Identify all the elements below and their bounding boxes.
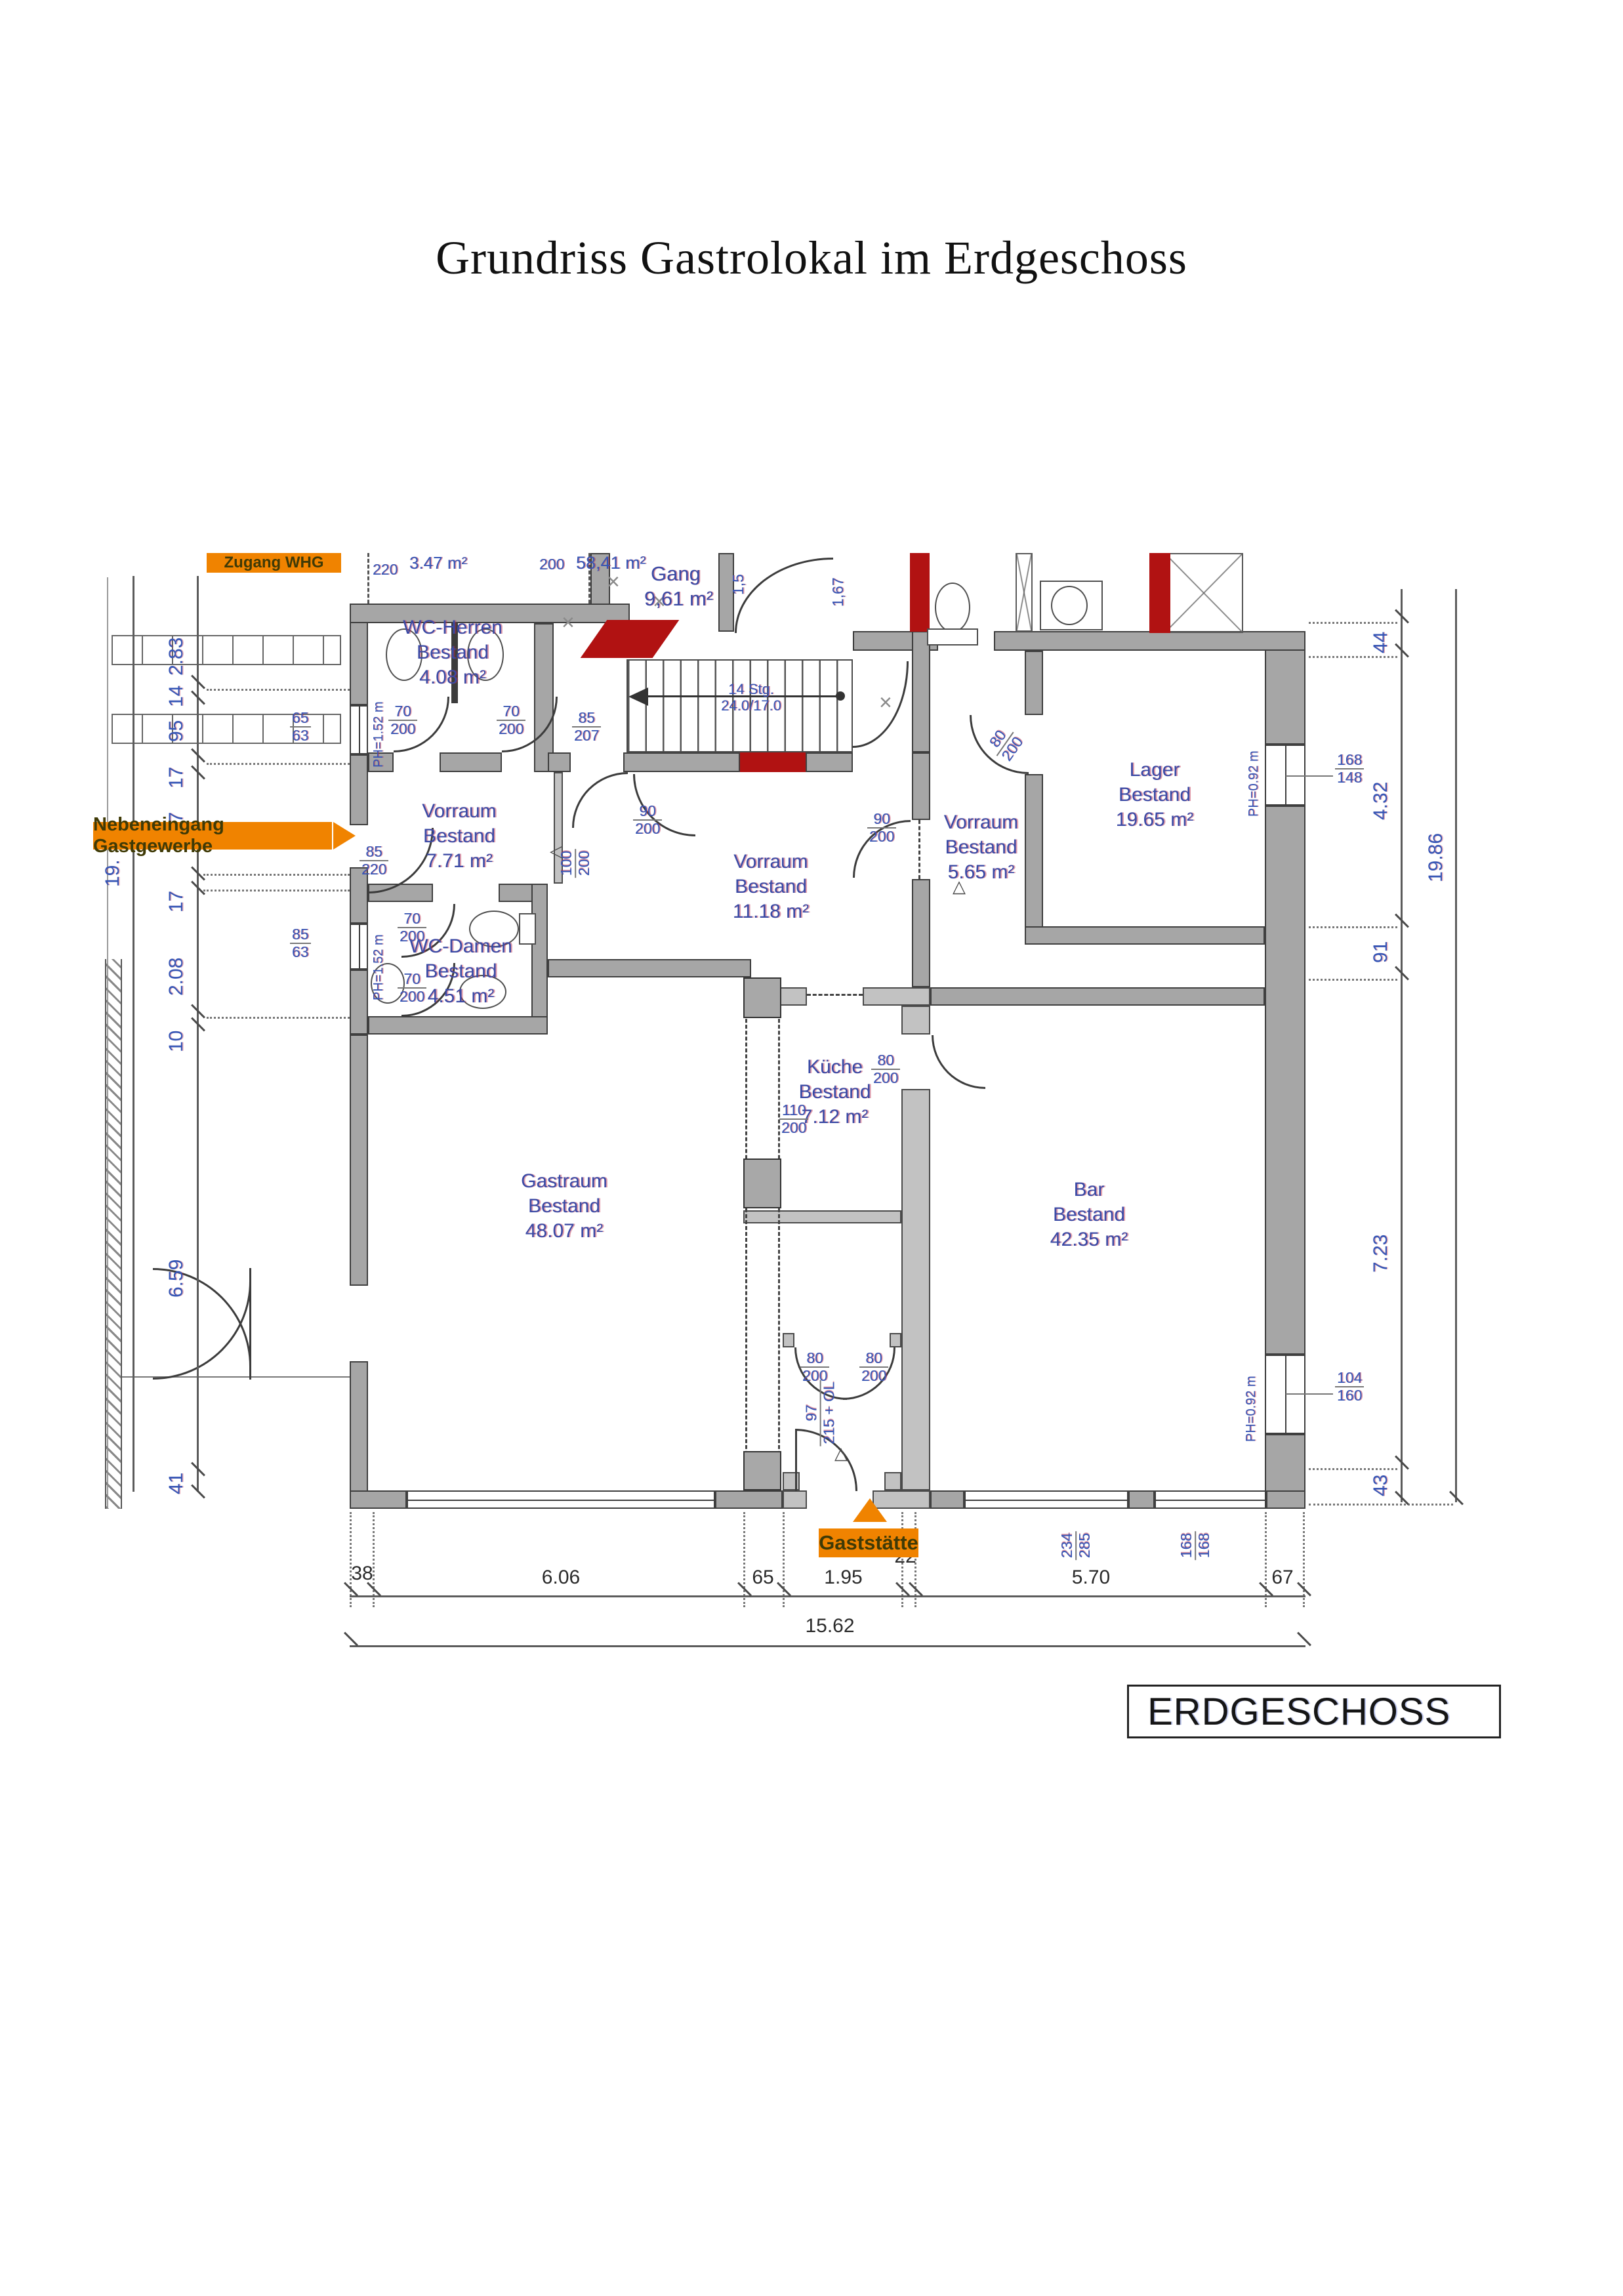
dim-91: 91 (1370, 926, 1392, 963)
wall (350, 754, 368, 825)
wall (884, 1472, 901, 1490)
kueche-bar-door-arc (932, 1035, 985, 1089)
extension-line (1309, 656, 1397, 658)
floor-tag-text: ERDGESCHOSS (1147, 1690, 1450, 1734)
door-dim-80x200: 80200 (859, 1350, 888, 1384)
room-label-gastraum: Gastraum Bestand 48.07 m² (489, 1169, 640, 1244)
window-dim-104x160: 104160 (1335, 1370, 1364, 1404)
wall-opening-dashed (807, 994, 863, 996)
leader-line (1286, 1393, 1333, 1395)
dimension-total-line (350, 1645, 1305, 1647)
room-status: Bestand (424, 960, 497, 982)
door-dim-85x220: 85220 (360, 844, 388, 878)
parapet-height-label: PH=0.92 m (1246, 738, 1262, 817)
door-dim-70x200: 70200 (398, 911, 426, 945)
extension-line (743, 1512, 745, 1607)
x-mark: × (607, 569, 620, 595)
floor-plan-sheet: Grundriss Gastrolokal im Erdgeschoss Zug… (0, 0, 1623, 2296)
wall (1265, 649, 1305, 745)
room-label-bar: Bar Bestand 42.35 m² (1014, 1178, 1164, 1252)
wall (350, 1490, 407, 1509)
leader-line (1286, 775, 1333, 777)
wall (350, 1361, 368, 1509)
extension-line (1303, 1512, 1305, 1607)
red-wall-segment (1149, 553, 1170, 633)
opening-marker: △ (834, 1443, 848, 1464)
x-mark: × (879, 690, 892, 716)
wall (350, 970, 368, 1035)
gaststaette-label-text: Gaststätte (819, 1531, 918, 1555)
shaft-x-symbol (1164, 553, 1243, 633)
x-mark: × (562, 610, 575, 636)
room-area: 11.18 m² (733, 901, 809, 922)
wall (715, 1490, 783, 1509)
wall (1128, 1490, 1155, 1509)
room-label-lager: Lager Bestand 19.65 m² (1079, 758, 1230, 832)
stairs-label: 14 Stg. 24.0/17.0 (712, 681, 791, 714)
extension-line (207, 1017, 350, 1019)
opening-marker: △ (953, 876, 966, 897)
stair-hall-door-arc (572, 772, 628, 828)
dim-41: 41 (165, 1458, 188, 1494)
wall (350, 1035, 368, 1286)
window-dim-168x148: 168148 (1335, 752, 1364, 786)
page-title: Grundriss Gastrolokal im Erdgeschoss (0, 231, 1623, 285)
stair-arrow-head (628, 687, 648, 706)
room-label-vorraum-1118: Vorraum Bestand 11.18 m² (695, 850, 846, 924)
room-area: 48.07 m² (525, 1220, 603, 1242)
door-dim-85x207: 85207 (572, 710, 601, 744)
wall (548, 752, 571, 772)
room-label-wc-herren: WC-Herren Bestand 4.08 m² (377, 615, 528, 690)
dim-65: 65 (743, 1567, 783, 1589)
top-area-347: 3.47 m² (409, 555, 467, 571)
removed-wall-dashed (745, 977, 747, 1490)
wall (912, 879, 930, 987)
dimension-chain-line (197, 576, 199, 1492)
door-dim-100x200: 100200 (558, 849, 592, 878)
room-status: Bestand (798, 1081, 871, 1103)
dim-total-1562: 15.62 (797, 1615, 863, 1637)
gang-room-label: Gang (651, 565, 701, 582)
top-area-5841: 58,41 m² (576, 555, 646, 571)
parapet-height-label: PH=1.52 m (371, 679, 386, 768)
door-leaf (249, 1268, 251, 1380)
room-status: Bestand (1119, 784, 1191, 806)
extension-line (373, 1512, 375, 1607)
gang-door-arc (735, 558, 833, 633)
wall (1025, 926, 1265, 945)
door-dim-80x200: 80200 (800, 1350, 829, 1384)
red-wall-segment (740, 752, 806, 772)
bar-window-234x285 (964, 1490, 1128, 1509)
zugang-label: Zugang WHG (207, 553, 341, 573)
window-dim-65x63: 6563 (290, 710, 311, 744)
pillar (743, 1158, 781, 1208)
room-name: Vorraum (733, 851, 808, 872)
dim-right-total: 19.86 (1425, 797, 1447, 882)
wall (440, 752, 502, 772)
room-name: Küche (807, 1056, 863, 1078)
dim-44: 44 (1370, 617, 1392, 653)
stairs-count: 14 Stg. (728, 681, 774, 697)
wall (901, 1089, 930, 1490)
dim-17: 17 (165, 752, 188, 789)
extension-line (207, 763, 350, 765)
nebeneingang-label-text: Nebeneingang Gastgewerbe (93, 814, 332, 857)
door-dim-70x200: 70200 (398, 971, 426, 1005)
pillar (743, 977, 781, 1018)
wall (1265, 806, 1305, 1355)
dim-38: 38 (342, 1563, 382, 1585)
dim-tick (344, 1632, 358, 1647)
extension-line (1309, 1504, 1453, 1506)
door-dim-70x200: 70200 (497, 703, 525, 737)
extension-line (1309, 979, 1397, 981)
wall (912, 631, 930, 752)
wall (743, 1210, 901, 1223)
extension-line (350, 1512, 352, 1607)
stair-line-dot (836, 691, 845, 701)
toilet-tank (927, 628, 978, 646)
toilet-fixture (935, 583, 970, 632)
room-status: Bestand (735, 876, 807, 897)
dim-723: 7.23 (1370, 1200, 1392, 1273)
extension-line (207, 689, 350, 691)
dim-17: 17 (165, 876, 188, 912)
dim-432: 4.32 (1370, 748, 1392, 820)
dimension-chain-line (350, 1595, 1305, 1597)
dim-67: 67 (1263, 1567, 1302, 1589)
wall (1025, 651, 1043, 715)
gastraum-window (407, 1490, 715, 1509)
room-name: Bar (1074, 1179, 1105, 1200)
room-name: Vorraum (422, 800, 496, 822)
zugang-label-text: Zugang WHG (224, 554, 324, 572)
bar-window-168x168 (1155, 1490, 1266, 1509)
dim-570: 5.70 (1061, 1567, 1120, 1589)
sink-basin (1051, 586, 1088, 625)
wall (994, 631, 1305, 651)
dim-283: 2.83 (165, 594, 188, 676)
room-area: 4.08 m² (419, 666, 486, 688)
dim-606: 6.06 (531, 1567, 590, 1589)
room-status: Bestand (423, 825, 495, 847)
room-area: 19.65 m² (1116, 809, 1193, 830)
dim-tick (1297, 1632, 1311, 1647)
room-name: Gastraum (521, 1170, 607, 1192)
wall (623, 752, 740, 772)
dimension-total-line (1455, 589, 1457, 1502)
window-65x63 (350, 705, 368, 754)
extension-line (783, 1512, 785, 1607)
door-dim-97x215-ol: 97215 + OL (804, 1380, 838, 1446)
top-vdim-15: 1,5 (729, 554, 747, 595)
walkway-dotted-line (203, 874, 350, 876)
wall (783, 1333, 794, 1347)
red-wall-segment (581, 620, 680, 658)
room-area: 4.51 m² (428, 985, 495, 1007)
room-label-vorraum-771: Vorraum Bestand 7.71 m² (384, 799, 535, 874)
room-name: Lager (1130, 759, 1180, 781)
wall (930, 1490, 964, 1509)
wall (890, 1333, 901, 1347)
pillar (743, 1451, 781, 1490)
extension-line (1265, 1512, 1267, 1607)
room-area: 42.35 m² (1050, 1229, 1128, 1250)
wall (1266, 1490, 1305, 1509)
dimension-chain-line (1401, 589, 1403, 1502)
dim-14: 14 (165, 670, 188, 707)
room-area: 7.12 m² (802, 1106, 869, 1128)
dim-659: 6.59 (165, 1225, 188, 1298)
wall (783, 1490, 807, 1509)
stairs-dimensions: 24.0/17.0 (721, 697, 781, 714)
door-dim-80x200: 80200 (871, 1052, 900, 1086)
door-dim-90x200: 90200 (867, 811, 896, 845)
room-status: Bestand (417, 642, 489, 663)
door-leaf (795, 1429, 797, 1491)
door-dim-110x200: 110200 (779, 1102, 808, 1136)
room-status: Bestand (528, 1195, 600, 1217)
neighbor-wall-hatch (105, 959, 122, 1509)
wall (548, 959, 751, 977)
window-dim-85x63: 8563 (290, 926, 311, 960)
door-dim-70x200: 70200 (388, 703, 417, 737)
nebeneingang-arrow-icon (333, 822, 356, 850)
dim-195: 1.95 (815, 1567, 871, 1589)
dim-43: 43 (1370, 1460, 1392, 1496)
room-name: WC-Herren (403, 617, 503, 638)
wall (863, 987, 930, 1006)
gaststaette-entrance-triangle-icon (853, 1498, 887, 1522)
nebeneingang-label: Nebeneingang Gastgewerbe (93, 822, 332, 850)
parapet-height-label: PH=1.52 m (371, 912, 386, 1000)
wall (806, 752, 853, 772)
floor-tag-box: ERDGESCHOSS (1127, 1685, 1501, 1738)
dim-10: 10 (165, 1015, 188, 1052)
top-dim-200: 200 (539, 556, 564, 573)
dimension-total-line (133, 576, 134, 1492)
top-dim-220: 220 (373, 562, 398, 578)
room-status: Bestand (945, 836, 1017, 858)
window-dim-234x285: 234285 (1059, 1531, 1093, 1560)
window-x-symbol (1016, 553, 1033, 632)
door-dim-90x200: 90200 (633, 803, 662, 837)
room-status: Bestand (1053, 1204, 1125, 1225)
parapet-height-label: PH=0.92 m (1244, 1350, 1259, 1442)
room-name: Vorraum (944, 811, 1018, 833)
top-vdim-167: 1,67 (829, 554, 847, 607)
walkway-dotted-line (203, 890, 350, 892)
wall (368, 1016, 548, 1035)
gaststaette-label: Gaststätte (819, 1528, 918, 1557)
outside-strip (112, 635, 341, 665)
wall (930, 987, 1265, 1006)
dim-208: 2.08 (165, 924, 188, 996)
room-label-vorraum-565: Vorraum Bestand 5.65 m² (917, 810, 1045, 885)
room-area: 7.71 m² (426, 850, 493, 872)
window-dim-168x168: 168168 (1178, 1531, 1212, 1560)
red-wall-segment (910, 553, 930, 632)
window-85x63 (350, 924, 368, 970)
wall (901, 1006, 930, 1035)
gang-area-label: 9,61 m² (644, 590, 713, 607)
dim-95: 95 (165, 705, 188, 742)
